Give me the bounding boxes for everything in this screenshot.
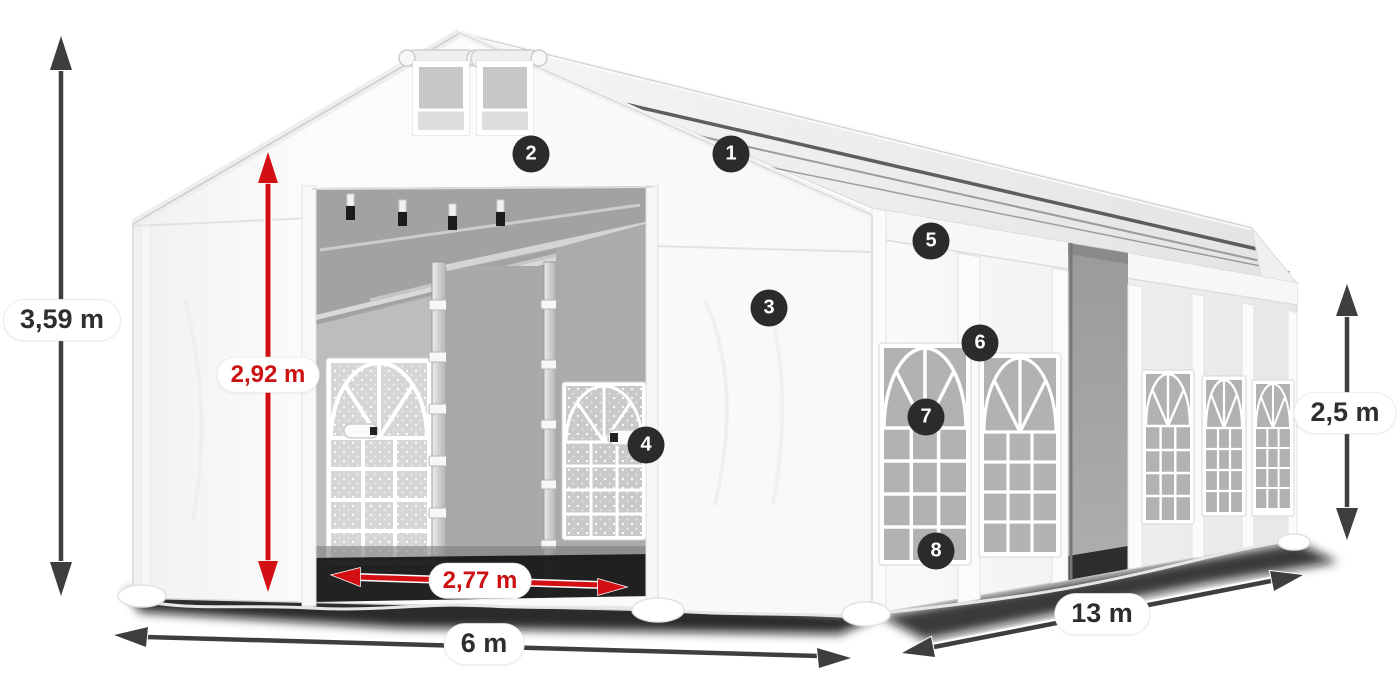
interior-window-left [326,358,432,566]
side-height-label: 2,5 m [1294,393,1395,433]
total-height-label: 3,59 m [4,300,120,340]
gable-width-label: 6 m [445,624,524,664]
callout-2: 2 [513,136,550,173]
side-window-5 [1252,380,1294,516]
interior-window-far [562,382,646,540]
side-window-1 [879,343,971,565]
tent-illustration [0,0,1400,700]
length-label: 13 m [1055,594,1149,634]
door-jamb-right [646,186,658,614]
callout-5: 5 [913,223,950,260]
door-handle-left [344,424,378,438]
front-door-opening [312,186,652,604]
callout-1: 1 [713,136,750,173]
callout-6: 6 [962,325,999,362]
entrance-height-label: 2,92 m [218,358,319,392]
callout-7: 7 [908,399,945,436]
side-door-opening [1068,243,1128,580]
side-window-4 [1202,376,1246,516]
door-jamb-left [302,186,316,606]
callout-3: 3 [751,290,788,327]
callout-4: 4 [628,427,665,464]
entrance-width-label: 2,77 m [430,564,531,598]
side-window-3 [1142,370,1194,524]
corner-strap [141,226,151,598]
side-window-2 [979,353,1061,557]
tent-dimension-diagram: 3,59 m 2,92 m 2,77 m 6 m 13 m 2,5 m 1 2 … [0,0,1400,700]
callout-8: 8 [918,533,955,570]
